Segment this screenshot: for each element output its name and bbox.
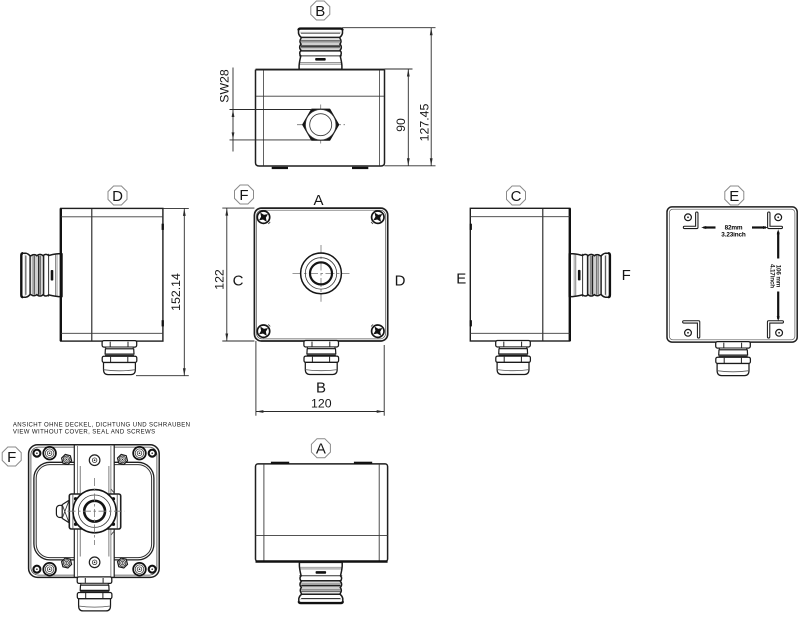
svg-text:VIEW WITHOUT COVER, SEAL AND S: VIEW WITHOUT COVER, SEAL AND SCREWS [13,430,156,436]
svg-text:C: C [233,273,244,290]
svg-text:E: E [729,188,739,205]
svg-text:B: B [316,379,326,396]
svg-text:A: A [316,441,326,458]
svg-text:F: F [622,267,631,284]
svg-text:C: C [511,188,522,205]
svg-text:120: 120 [311,397,332,411]
svg-text:ANSICHT OHNE DECKEL, DICHTUNG: ANSICHT OHNE DECKEL, DICHTUNG UND SCHRAU… [13,423,191,429]
svg-text:D: D [395,273,406,290]
svg-text:127.45: 127.45 [418,104,432,142]
svg-text:4.17inch: 4.17inch [769,264,776,288]
svg-text:82mm: 82mm [725,224,743,231]
svg-text:A: A [313,192,323,209]
svg-text:D: D [112,188,123,205]
svg-text:122: 122 [212,269,226,290]
svg-text:B: B [315,3,325,20]
svg-text:F: F [239,187,248,204]
svg-text:152.14: 152.14 [169,273,183,311]
svg-text:SW28: SW28 [218,69,232,103]
svg-text:F: F [7,449,16,466]
svg-text:3.23inch: 3.23inch [721,232,746,239]
svg-text:90: 90 [394,118,408,132]
svg-text:E: E [456,270,466,287]
